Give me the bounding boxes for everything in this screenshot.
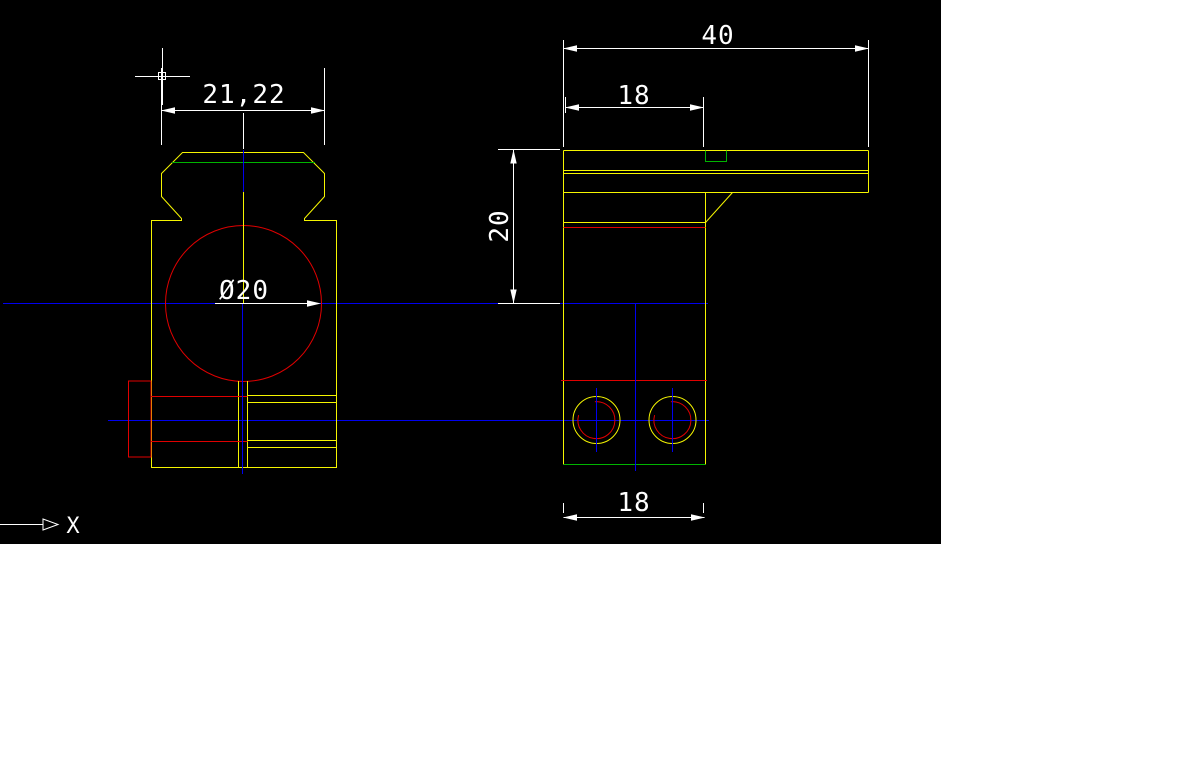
arrowhead-icon [563, 514, 577, 520]
dimension-bore-diameter: Ø20 [215, 276, 321, 307]
arrowhead-icon [161, 107, 175, 113]
dimension-plate-inset: 18 [565, 81, 704, 147]
body-chamfer-diagonal [706, 193, 733, 223]
front-vertical-centerline [243, 150, 244, 474]
dimension-height: 20 [485, 150, 560, 304]
dim-text: 21,22 [202, 80, 285, 110]
dim-text: Ø20 [219, 276, 269, 306]
dim-text: 20 [485, 209, 515, 242]
dim-text: 40 [701, 21, 734, 51]
arrowhead-icon [510, 150, 516, 164]
side-view [561, 151, 869, 472]
dimension-front-width: 21,22 [161, 68, 325, 149]
cad-application-page: 21,22 Ø20 40 18 [0, 0, 1200, 761]
front-view [129, 150, 337, 474]
plate-green-notch [706, 151, 727, 162]
arrowhead-icon [691, 514, 705, 520]
x-axis-arrow-icon [43, 519, 58, 530]
front-slot-region [129, 381, 337, 467]
crosshair-cursor [135, 48, 190, 105]
arrowhead-icon [855, 45, 869, 51]
arrowhead-icon [311, 107, 325, 113]
dimension-plate-length: 40 [563, 21, 869, 147]
dimension-body-width: 18 [563, 488, 705, 521]
arrowhead-icon [690, 104, 704, 110]
dim-text: 18 [617, 81, 650, 111]
side-body [561, 151, 733, 472]
dim-text: 18 [617, 488, 650, 518]
arrowhead-icon [563, 45, 577, 51]
x-axis-label: X [66, 514, 80, 539]
front-left-red-boss [129, 381, 152, 457]
arrowhead-icon [510, 290, 516, 304]
side-plate [564, 151, 869, 193]
ucs-icon: X [0, 514, 80, 539]
drawing-svg: 21,22 Ø20 40 18 [0, 0, 941, 544]
arrowhead-icon [565, 104, 579, 110]
drawing-canvas[interactable]: 21,22 Ø20 40 18 [0, 0, 941, 544]
arrowhead-icon [307, 300, 321, 306]
